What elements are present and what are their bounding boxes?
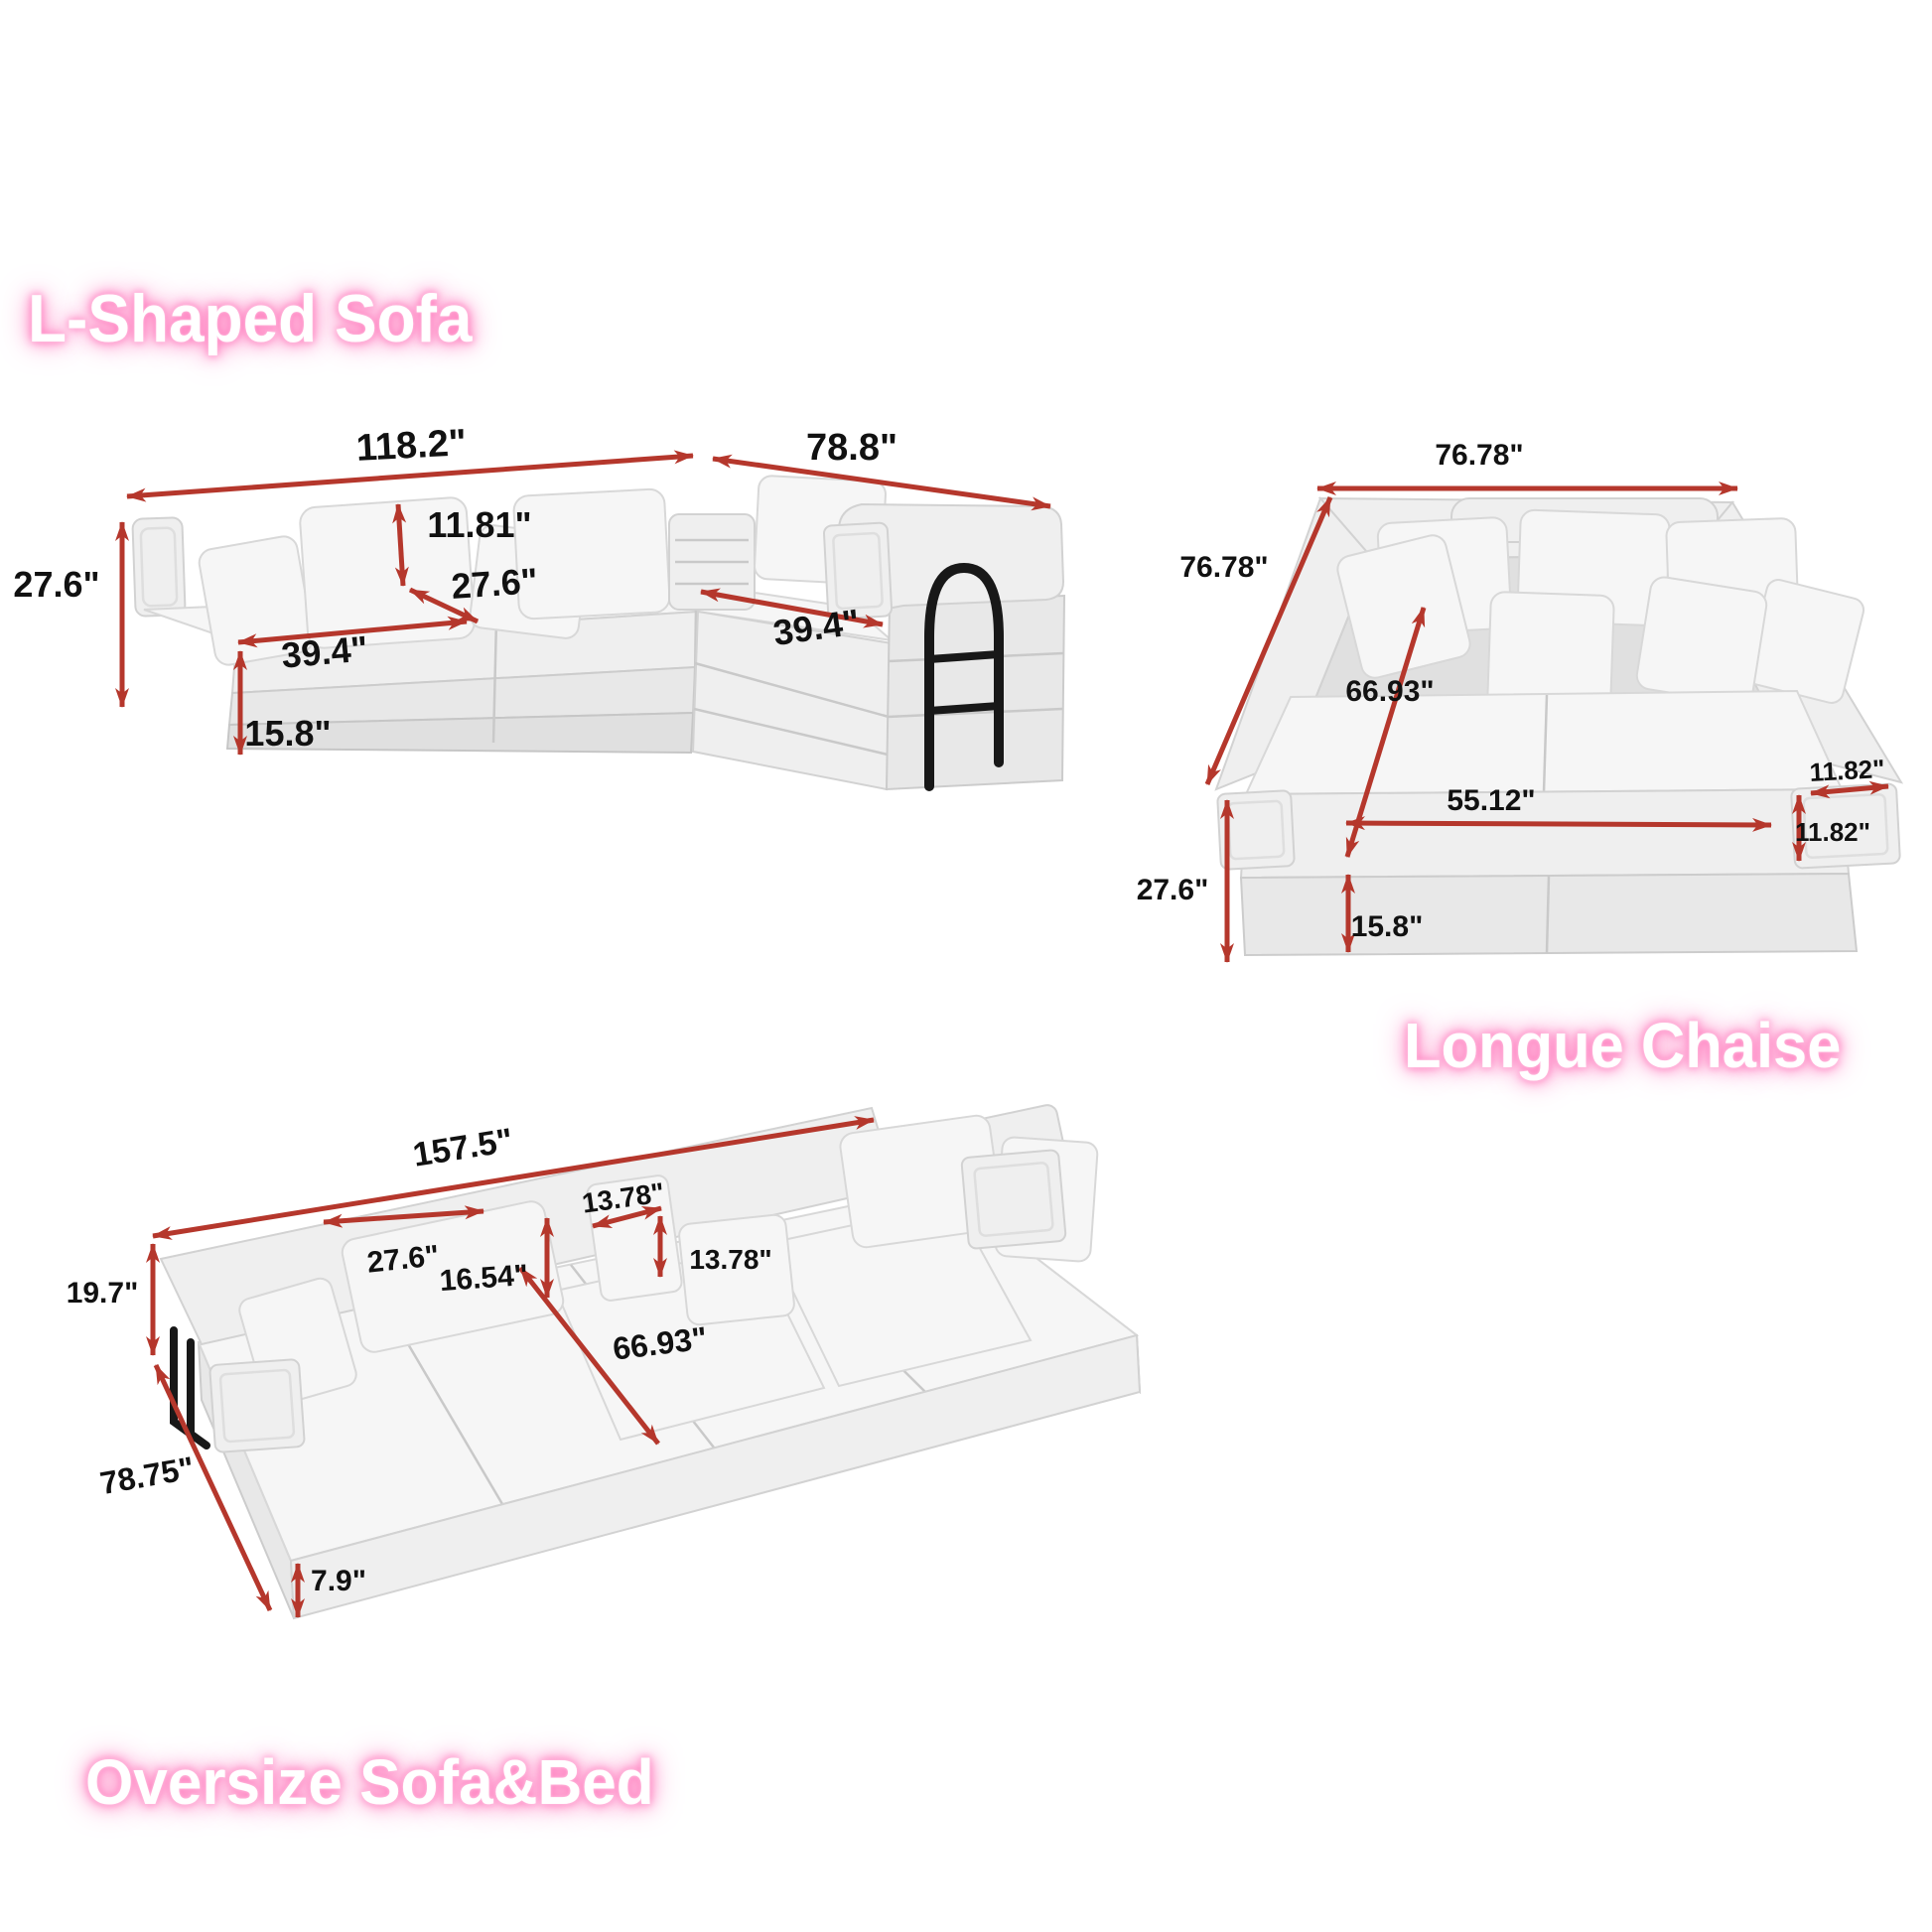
- throw-pillow: [1635, 575, 1768, 705]
- dim-label: 27.6": [1137, 874, 1209, 906]
- dim-label: 78.8": [806, 427, 897, 469]
- dim-label: 15.8": [244, 713, 331, 754]
- dim-arrow-inner-width: [1346, 823, 1771, 825]
- dim-label: 16.54": [439, 1259, 529, 1298]
- dim-label: 118.2": [355, 422, 468, 470]
- right-stack: [887, 596, 1064, 789]
- dim-label: 11.82": [1809, 754, 1885, 787]
- dim-label: 66.93": [1345, 675, 1434, 708]
- dim-label: 27.6": [13, 564, 99, 605]
- dim-label: 157.5": [410, 1121, 515, 1173]
- title-oversize-sofa-bed: Oversize Sofa&Bed: [85, 1745, 654, 1819]
- longue-chaise-illustration: [1216, 498, 1901, 955]
- title-l-shaped-sofa: L-Shaped Sofa: [28, 280, 472, 357]
- dim-label: 27.6": [450, 560, 539, 607]
- dim-label: 7.9": [311, 1565, 366, 1597]
- dim-label: 55.12": [1447, 784, 1535, 817]
- metal-rung: [929, 706, 999, 711]
- dim-label: 78.75": [97, 1449, 197, 1501]
- title-longue-chaise: Longue Chaise: [1404, 1009, 1841, 1082]
- dim-label: 13.78": [689, 1244, 771, 1275]
- dim-label: 76.78": [1435, 439, 1523, 472]
- product-dimension-sheet: 118.2" 78.8" 27.6" 11.81" 27.6" 39.4" 15…: [0, 0, 1932, 1932]
- left-end-block: [132, 517, 185, 617]
- dim-label: 11.81": [427, 504, 531, 545]
- dim-label: 76.78": [1179, 551, 1268, 584]
- dim-label: 15.8": [1351, 910, 1424, 943]
- dim-label: 19.7": [67, 1277, 139, 1310]
- dim-label: 11.82": [1795, 817, 1870, 847]
- dim-label: 39.4": [280, 627, 369, 675]
- metal-rung: [929, 654, 999, 659]
- seat-front-face: [1241, 789, 1849, 878]
